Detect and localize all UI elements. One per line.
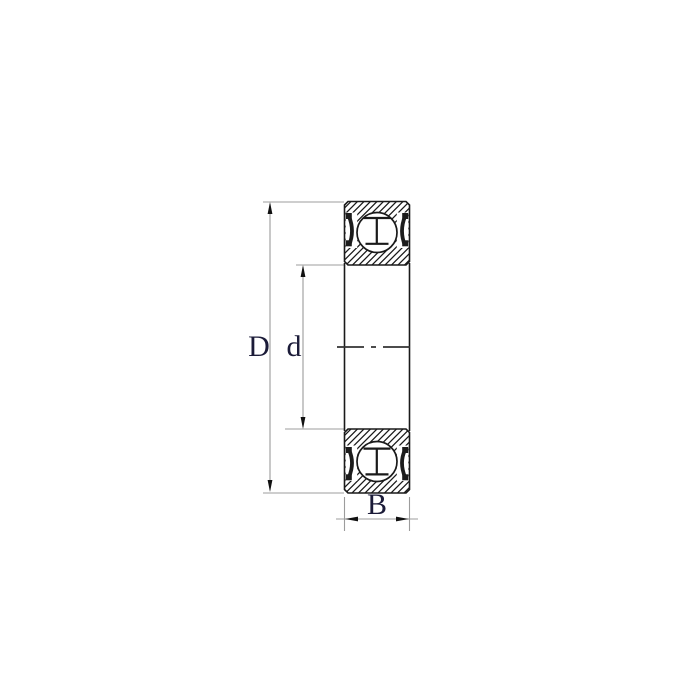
arrow-left-icon — [345, 517, 358, 522]
seal-anchor — [346, 213, 352, 219]
seal-anchor — [346, 240, 352, 246]
arrow-down-icon — [301, 417, 306, 429]
arrow-up-icon — [301, 265, 306, 277]
arrow-down-icon — [268, 480, 273, 492]
drawing-canvas: D d B — [0, 0, 700, 700]
label-bore-diameter: d — [287, 330, 302, 363]
seal-anchor — [346, 447, 352, 453]
seal-anchor — [402, 240, 408, 246]
arrow-right-icon — [396, 517, 409, 522]
arrow-up-icon — [268, 202, 273, 214]
seal-anchor — [402, 447, 408, 453]
bearing-diagram: D d B — [0, 0, 700, 700]
seal-anchor — [346, 474, 352, 480]
label-width: B — [367, 488, 387, 521]
label-outer-diameter: D — [248, 330, 270, 363]
seal-anchor — [402, 213, 408, 219]
seal-anchor — [402, 474, 408, 480]
